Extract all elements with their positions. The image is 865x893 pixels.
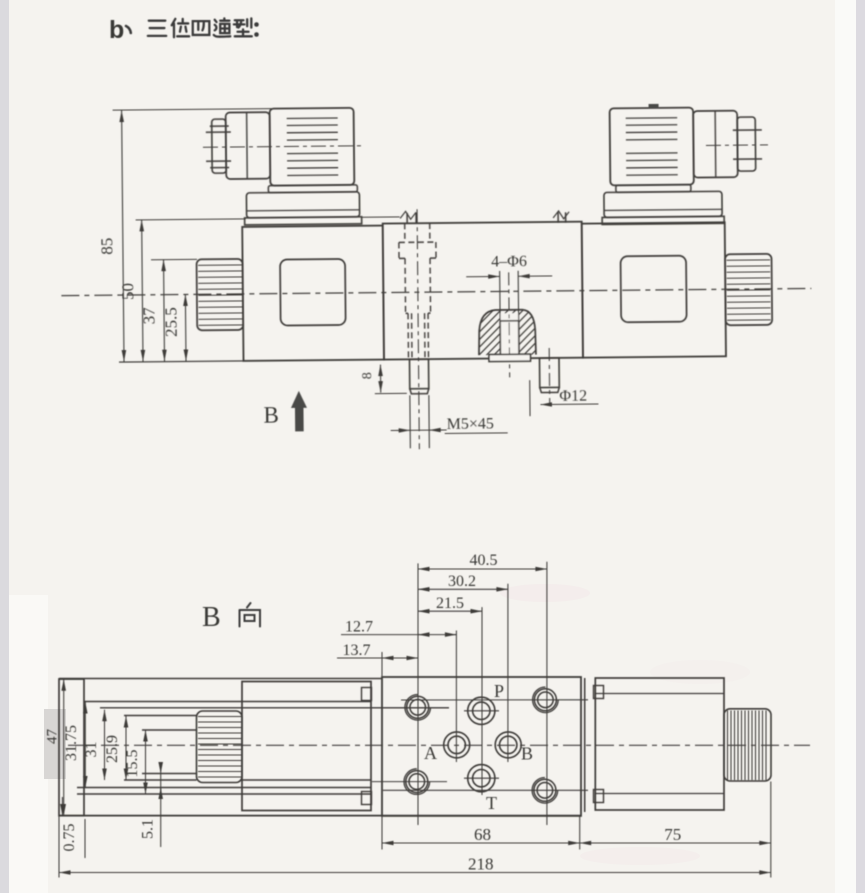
svg-text:13.7: 13.7 bbox=[343, 642, 371, 659]
svg-text:5.1: 5.1 bbox=[140, 819, 157, 839]
svg-text:B: B bbox=[202, 602, 221, 633]
svg-text:68: 68 bbox=[474, 825, 491, 844]
svg-text:Φ12: Φ12 bbox=[559, 388, 587, 405]
svg-text:b: b bbox=[109, 16, 124, 44]
svg-text:75: 75 bbox=[664, 825, 681, 844]
svg-text:25.5: 25.5 bbox=[161, 307, 180, 337]
svg-text:21.5: 21.5 bbox=[436, 595, 464, 612]
svg-text:31: 31 bbox=[83, 742, 100, 758]
svg-text:A: A bbox=[424, 743, 437, 763]
svg-text:B: B bbox=[521, 744, 533, 764]
svg-text:P: P bbox=[494, 681, 504, 701]
svg-text:37: 37 bbox=[139, 307, 158, 325]
svg-text:50: 50 bbox=[118, 283, 137, 300]
svg-text:31.75: 31.75 bbox=[63, 725, 80, 761]
svg-text:40.5: 40.5 bbox=[470, 552, 498, 569]
svg-text:47: 47 bbox=[45, 729, 61, 745]
svg-text:8: 8 bbox=[360, 372, 375, 379]
svg-text:4–Φ6: 4–Φ6 bbox=[491, 253, 527, 270]
svg-text:15.5: 15.5 bbox=[124, 750, 141, 778]
svg-text:B: B bbox=[263, 403, 279, 428]
svg-text:0.75: 0.75 bbox=[61, 824, 78, 852]
svg-text:M5×45: M5×45 bbox=[447, 416, 494, 433]
svg-text:30.2: 30.2 bbox=[448, 573, 476, 590]
svg-text:25.9: 25.9 bbox=[104, 735, 121, 763]
svg-text:T: T bbox=[486, 793, 497, 813]
svg-text:12.7: 12.7 bbox=[345, 619, 373, 636]
svg-text:85: 85 bbox=[97, 238, 116, 255]
svg-text:218: 218 bbox=[468, 855, 494, 874]
